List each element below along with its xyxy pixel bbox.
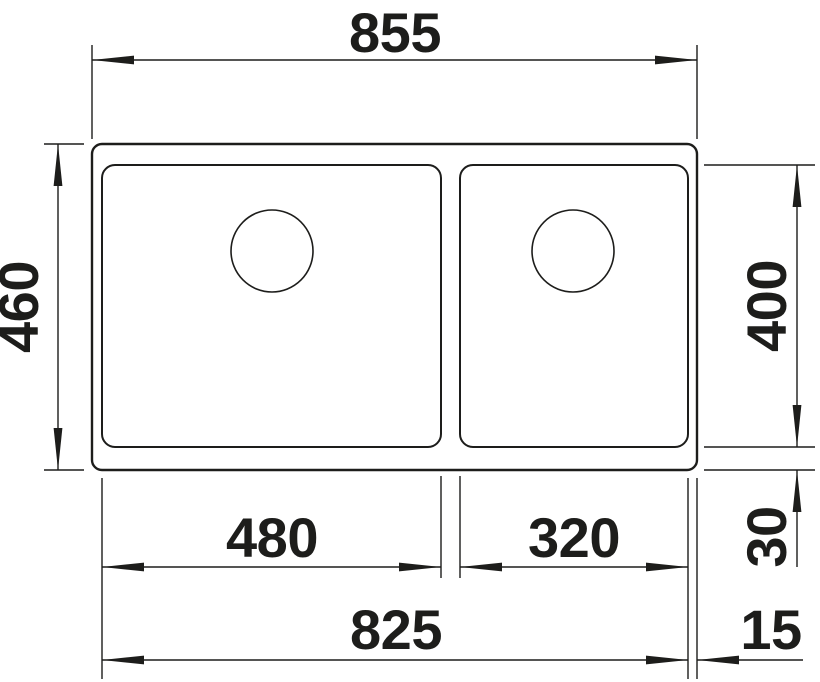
arrowhead-left-icon	[102, 563, 144, 572]
dim-left-bowl-width: 480	[102, 506, 441, 571]
dim-bottom-offset: 30	[735, 470, 801, 568]
sink-outer-edge	[92, 144, 697, 470]
bowl-right	[460, 165, 688, 447]
dim-label-bowls-total-width: 825	[350, 598, 442, 661]
dim-label-bottom-offset: 30	[735, 506, 798, 567]
drain-circle-right-icon	[532, 210, 614, 292]
drain-circle-left-icon	[231, 210, 313, 292]
extension-lines	[44, 45, 815, 679]
bowl-left	[102, 165, 441, 447]
dim-label-right-bowl-width: 320	[528, 506, 620, 569]
arrowhead-left-icon	[102, 656, 144, 665]
arrowhead-right-icon	[655, 56, 697, 65]
arrowhead-left-icon	[460, 563, 502, 572]
arrowhead-right-icon	[399, 563, 441, 572]
arrowhead-right-icon	[646, 656, 688, 665]
dim-label-overall-width: 855	[349, 1, 441, 64]
dim-label-left-bowl-width: 480	[226, 506, 318, 569]
arrowhead-up-icon	[793, 470, 802, 512]
sink-plan	[92, 144, 697, 470]
dim-bowl-depth: 400	[735, 165, 801, 447]
arrowhead-left-icon	[92, 56, 134, 65]
arrowhead-up-icon	[793, 165, 802, 207]
arrowhead-right-icon	[646, 563, 688, 572]
arrowhead-down-icon	[54, 428, 63, 470]
technical-drawing-page: 855 460 400 30 480	[0, 0, 820, 682]
dim-bowls-total-width: 825	[102, 598, 688, 664]
dim-overall-width: 855	[92, 1, 697, 64]
dim-label-right-offset: 15	[740, 598, 801, 661]
dim-right-offset: 15	[697, 598, 803, 664]
dim-label-bowl-depth: 400	[735, 260, 798, 352]
arrowhead-up-icon	[54, 144, 63, 186]
dim-label-overall-depth: 460	[0, 261, 50, 353]
dim-overall-depth: 460	[0, 144, 62, 470]
sink-dimension-drawing: 855 460 400 30 480	[0, 0, 820, 682]
dim-right-bowl-width: 320	[460, 506, 688, 571]
arrowhead-left-icon	[697, 656, 739, 665]
arrowhead-down-icon	[793, 405, 802, 447]
